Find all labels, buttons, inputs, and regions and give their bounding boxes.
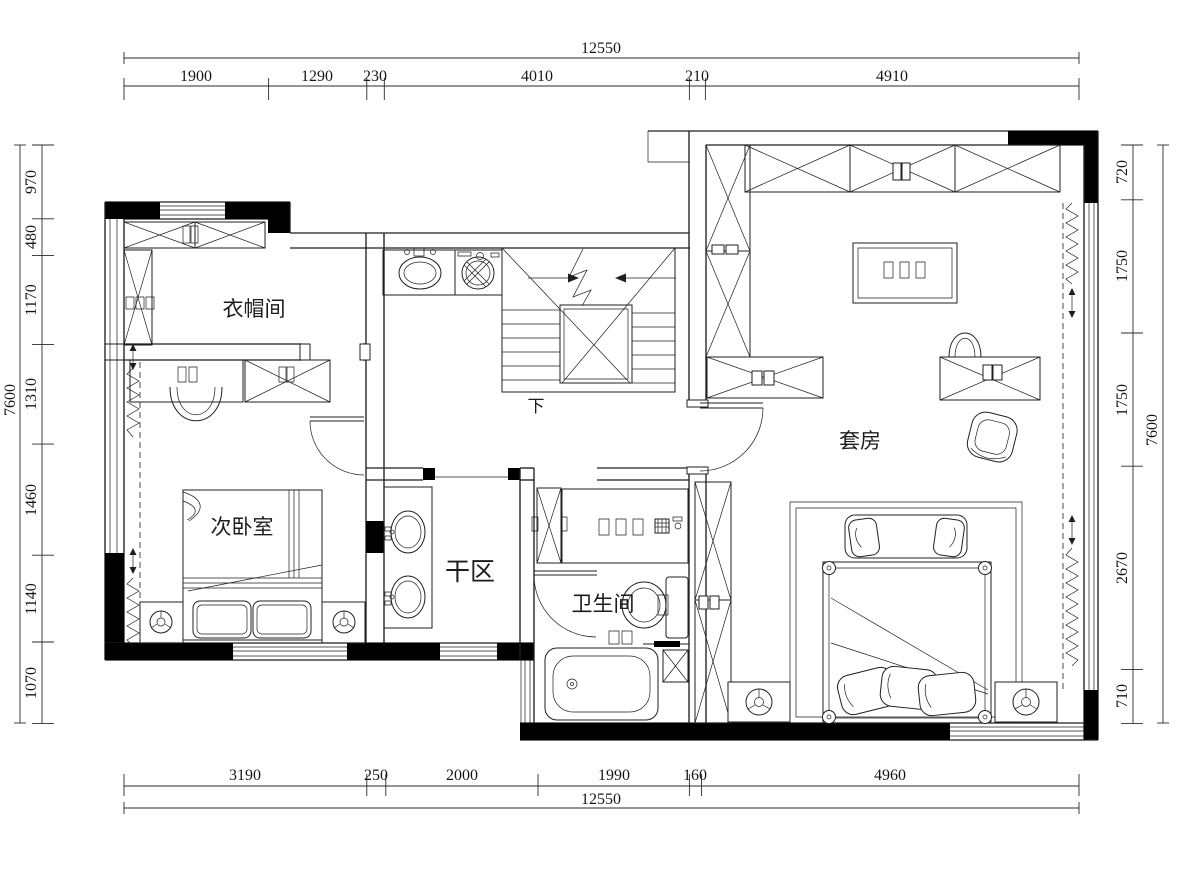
dim-top-1: 1290 xyxy=(301,68,333,85)
bathtub-icon xyxy=(545,648,658,720)
room-label-cloakroom: 衣帽间 xyxy=(223,298,286,321)
wardrobe-lower xyxy=(245,360,330,402)
dim-top-4: 210 xyxy=(685,68,709,85)
door-jamb xyxy=(360,344,370,360)
dim-right-3: 2670 xyxy=(1114,552,1131,584)
master-bed xyxy=(823,562,992,724)
suite: 套房 xyxy=(695,145,1078,724)
walls-middle xyxy=(105,233,690,723)
suite-door xyxy=(700,403,763,471)
bed-bench xyxy=(845,515,967,558)
window-curtain xyxy=(1063,203,1078,690)
hall-sink-washer xyxy=(383,248,502,295)
nightstand-left xyxy=(140,602,183,643)
walls-left-block xyxy=(105,202,290,660)
cabinet-a xyxy=(707,357,823,398)
walls-suite xyxy=(520,131,1098,740)
dim-right-2: 1750 xyxy=(1114,384,1131,416)
dimension-top: 12550 1900 1290 230 4010 210 4910 xyxy=(124,40,1079,100)
stair-void xyxy=(560,305,632,383)
dim-left-6: 1070 xyxy=(23,667,40,699)
pillow xyxy=(253,601,311,638)
stair-direction-arrow xyxy=(568,274,579,283)
window-curtain-left xyxy=(127,344,140,646)
wardrobe-left-column xyxy=(706,145,750,357)
dry-area: 干区 xyxy=(384,487,495,628)
room-label-bathroom: 卫生间 xyxy=(572,593,635,616)
dimension-right: 720 1750 1750 2670 710 7600 xyxy=(1114,145,1169,723)
pillow xyxy=(917,671,977,717)
wall-post xyxy=(423,468,435,480)
dim-right-0: 720 xyxy=(1114,160,1131,184)
dim-total-top: 12550 xyxy=(581,40,621,57)
dim-bottom-4: 160 xyxy=(683,767,707,784)
dim-left-3: 1310 xyxy=(23,378,40,410)
dim-total-right: 7600 xyxy=(1144,414,1161,446)
bathroom: 卫生间 xyxy=(532,488,689,720)
column xyxy=(366,521,384,553)
nightstand-left xyxy=(728,682,790,722)
dimension-left: 970 480 1170 1310 1460 1140 1070 7600 xyxy=(2,145,54,723)
secondary-bedroom: 次卧室 xyxy=(140,417,365,643)
dim-right-4: 710 xyxy=(1114,684,1131,708)
dim-left-4: 1460 xyxy=(23,484,40,516)
dim-left-1: 480 xyxy=(23,225,40,249)
wardrobe-top-row xyxy=(745,145,1060,192)
dim-bottom-3: 1990 xyxy=(598,767,630,784)
duct-shaft xyxy=(663,650,688,682)
nightstand-right xyxy=(995,682,1057,722)
floor-drain-icon xyxy=(655,519,669,533)
dim-bottom-5: 4960 xyxy=(874,767,906,784)
column xyxy=(1084,131,1098,203)
column xyxy=(268,219,290,233)
dim-right-1: 1750 xyxy=(1114,250,1131,282)
dim-total-bottom: 12550 xyxy=(581,791,621,808)
column xyxy=(105,202,160,219)
dim-top-5: 4910 xyxy=(876,68,908,85)
dim-top-2: 230 xyxy=(363,68,387,85)
column xyxy=(105,643,233,660)
sink-icon xyxy=(385,576,425,618)
stair-direction-arrow xyxy=(615,274,626,283)
dim-top-3: 4010 xyxy=(521,68,553,85)
dresser-desk xyxy=(130,360,243,421)
sink-icon xyxy=(385,511,425,553)
floor-plan-page: 下 xyxy=(0,0,1200,874)
stool-icon xyxy=(170,387,222,421)
tall-cabinet xyxy=(124,250,154,345)
island-dresser xyxy=(853,243,957,303)
shelf xyxy=(654,641,680,647)
room-label-dry-area: 干区 xyxy=(445,558,495,586)
pillow xyxy=(193,601,251,638)
dim-bottom-1: 250 xyxy=(364,767,388,784)
armchair-icon xyxy=(964,409,1020,465)
bed xyxy=(183,490,322,640)
dim-total-left: 7600 xyxy=(2,384,19,416)
room-label-suite: 套房 xyxy=(839,430,881,453)
room-label-secondary-bedroom: 次卧室 xyxy=(211,516,274,539)
dimension-bottom: 3190 250 2000 1990 160 4960 12550 xyxy=(124,767,1079,814)
column xyxy=(497,643,534,660)
door-jamb xyxy=(300,344,310,360)
washing-machine-icon xyxy=(458,252,499,289)
column xyxy=(347,643,440,660)
shower-area xyxy=(562,489,688,563)
cloakroom: 衣帽间 xyxy=(124,222,330,421)
dim-left-2: 1170 xyxy=(23,284,40,315)
stairs-down-label: 下 xyxy=(528,397,545,416)
dim-top-0: 1900 xyxy=(180,68,212,85)
column xyxy=(225,202,290,219)
wardrobe-low-column xyxy=(695,482,731,723)
bag-icon xyxy=(949,333,981,357)
floor-plan-drawing: 下 xyxy=(0,0,1200,874)
dim-left-5: 1140 xyxy=(23,583,40,614)
column xyxy=(1084,690,1098,740)
sink-icon xyxy=(399,248,441,289)
dim-bottom-0: 3190 xyxy=(229,767,261,784)
nightstand-right xyxy=(322,602,365,643)
bedroom-door xyxy=(310,417,364,475)
vanity-counter xyxy=(384,487,432,628)
wardrobe-top xyxy=(124,222,265,248)
wall-post xyxy=(508,468,520,480)
dim-bottom-2: 2000 xyxy=(446,767,478,784)
staircase: 下 xyxy=(502,248,676,416)
dim-left-0: 970 xyxy=(23,170,40,194)
cabinet-b xyxy=(940,333,1040,400)
column xyxy=(520,723,950,740)
